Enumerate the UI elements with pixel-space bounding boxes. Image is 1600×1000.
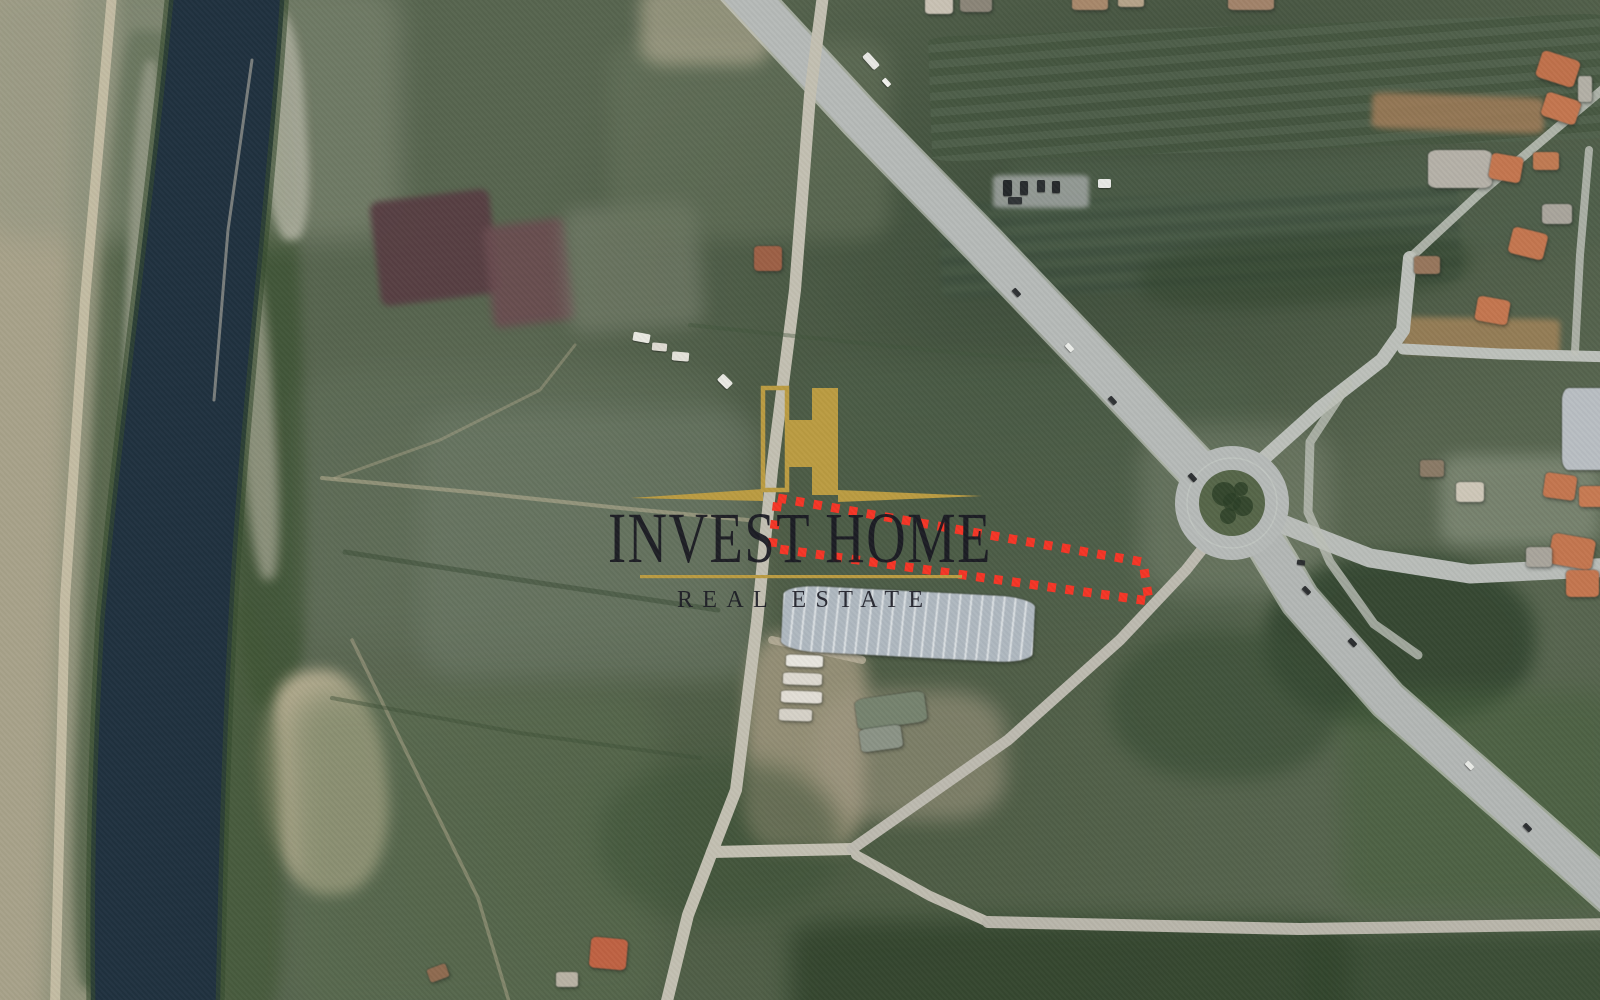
logo-h-crossbar-icon <box>786 420 814 467</box>
logo-monogram <box>631 388 982 502</box>
logo-h-right-bar-icon <box>812 388 838 495</box>
company-tagline: REAL ESTATE <box>677 587 923 613</box>
logo-h-left-bar-icon <box>763 388 787 490</box>
logo-divider-rule <box>640 575 962 578</box>
invest-home-watermark-logo: INVEST HOME REAL ESTATE <box>0 0 1600 1000</box>
satellite-map-image: INVEST HOME REAL ESTATE <box>0 0 1600 1000</box>
company-name: INVEST HOME <box>608 498 992 578</box>
